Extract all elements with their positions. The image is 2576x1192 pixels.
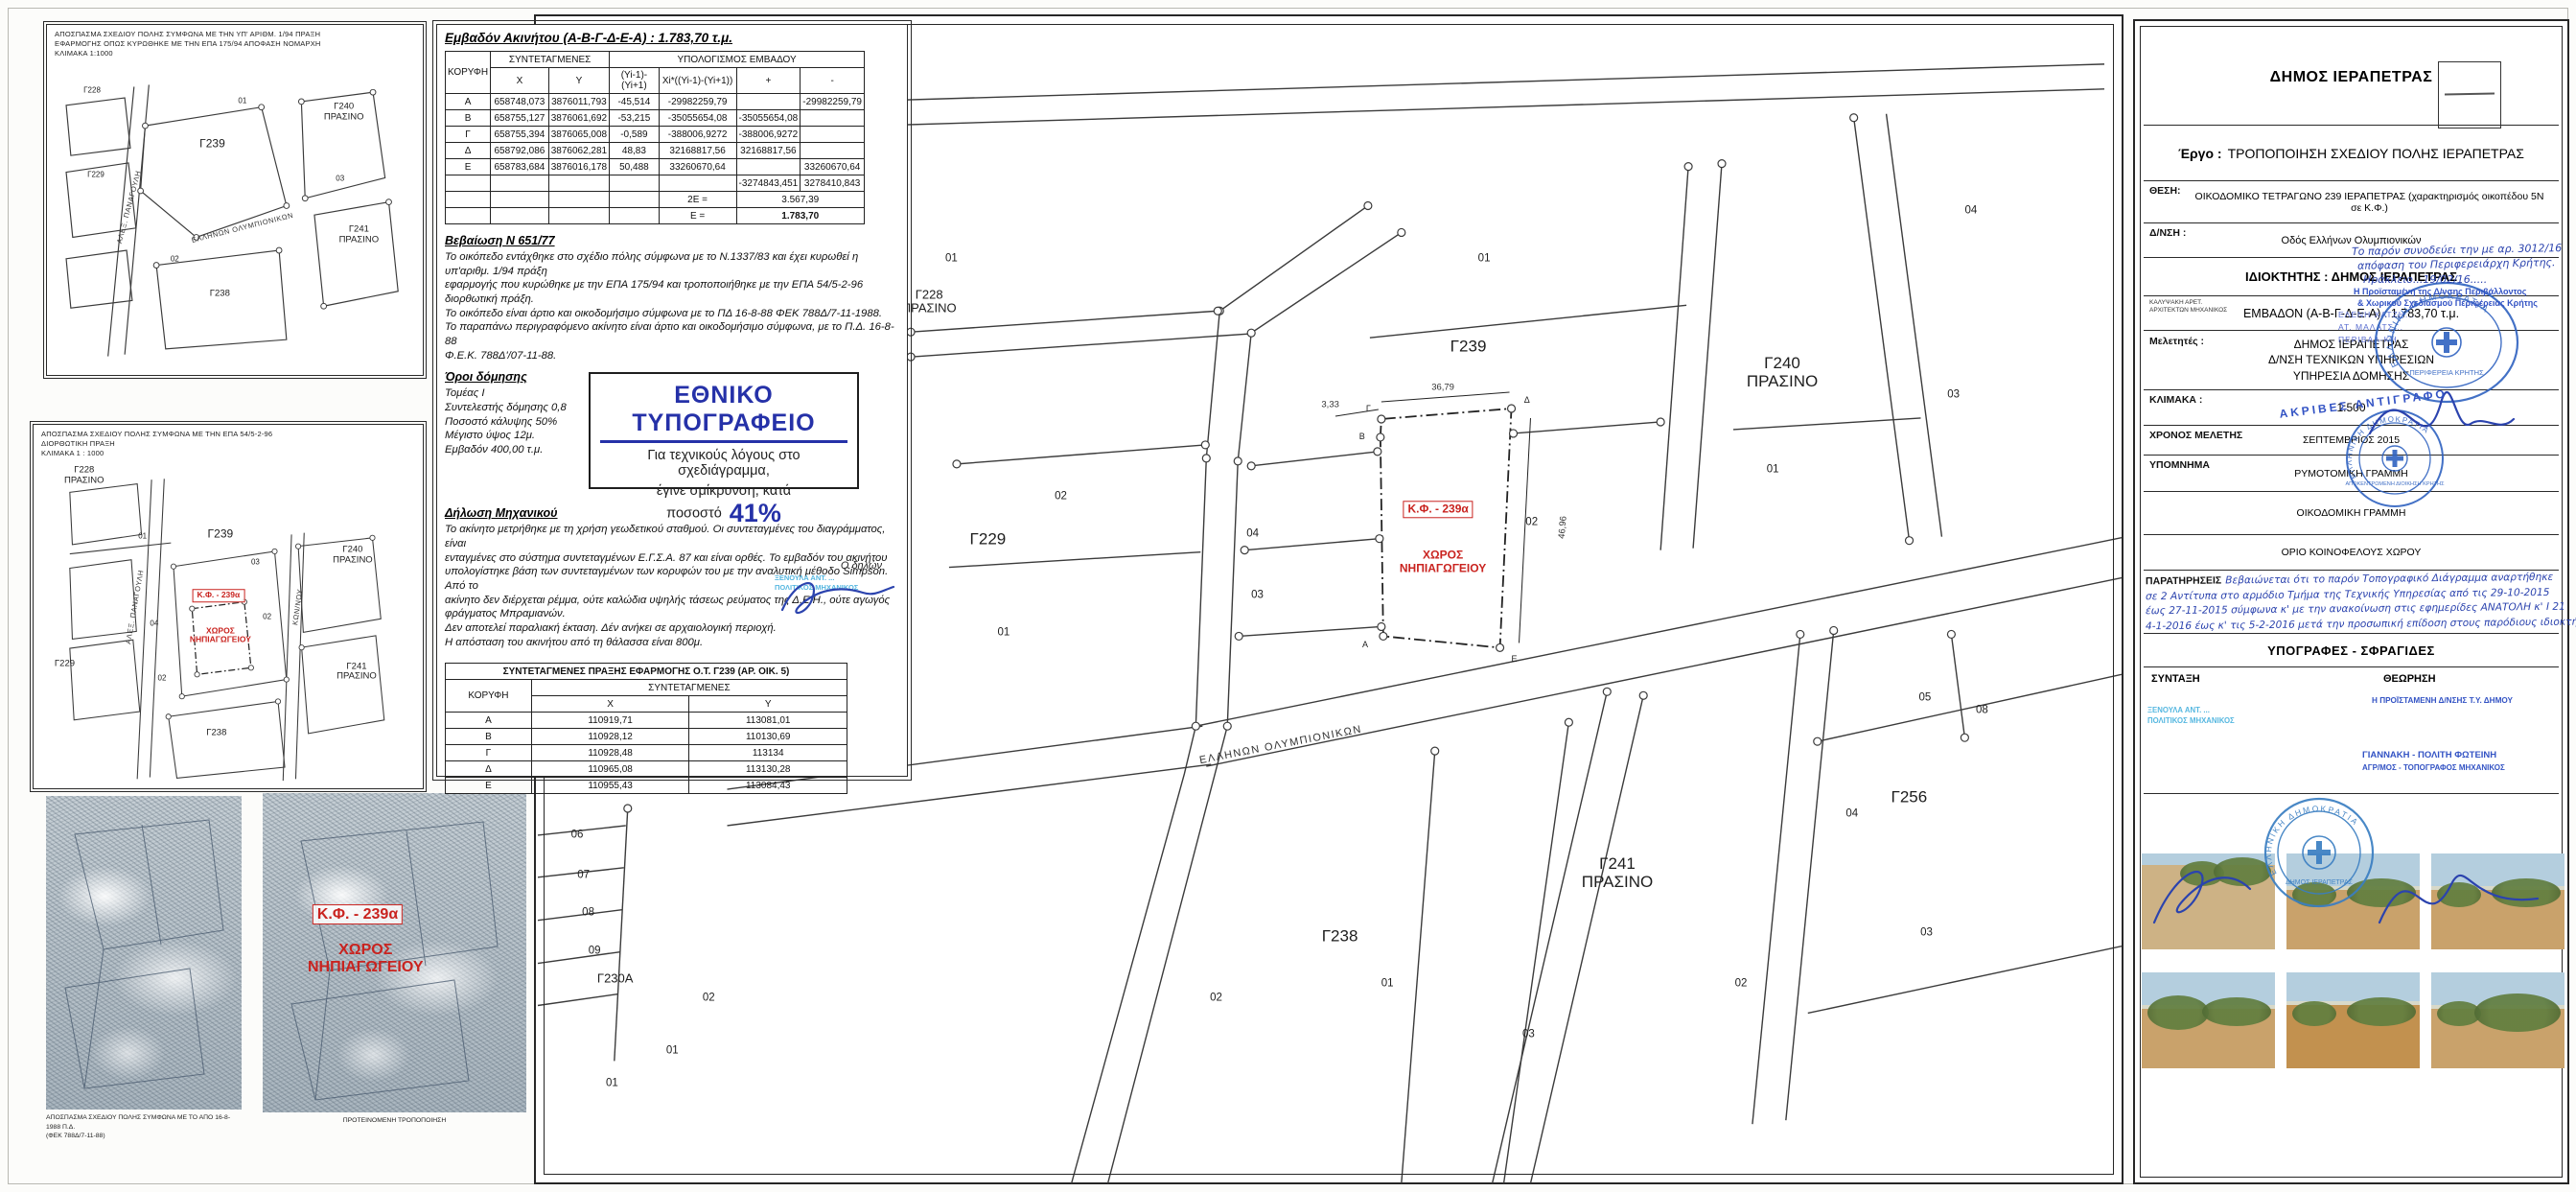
text-line: Συντελεστής δόμησης 0,8 [445,401,613,415]
certification-651-77: Βεβαίωση Ν 651/77 Το οικόπεδο εντάχθηκε … [445,234,899,362]
caption-line: ΑΠΟΣΠΑΣΜΑ ΣΧΕΔΙΟΥ ΠΟΛΗΣ ΣΥΜΦΩΝΑ ΜΕ ΤΗΝ Ε… [41,430,417,439]
drafter-title: ΑΡΧΙΤΕΚΤΩΝ ΜΗΧΑΝΙΚΟΣ [2149,307,2227,315]
building-terms-title: Όροι δόμησης [445,370,613,384]
address-label: Δ/ΝΣΗ : [2149,227,2186,239]
site-photo [2286,853,2420,949]
location-label: ΘΕΣΗ: [2149,185,2181,197]
engineer-stamp-title: ΠΟΛΙΤΙΚΟΣ ΜΗΧΑΝΙΚΟΣ [2147,716,2235,727]
scale-label: ΚΛΙΜΑΚΑ : [2149,394,2202,406]
site-photo [2431,972,2564,1068]
vegetation [2202,997,2271,1026]
col-x: X [531,696,689,713]
officer-stamp-text: ΕΛΕΝΗ ΧΑΤΖΗ... ΑΤ. ΜΑΛΑΤΣ... ΠΕΡΙΒΑΛ-ΚΗ [2338,309,2415,345]
drafter-name: ΚΑΛΥΨΑΚΗ ΑΡΕΤ. [2149,299,2227,307]
col-y: Y [548,68,609,94]
printing-office-brand: ΕΘΝΙΚΟ ΤΥΠΟΓΡΑΦΕΙΟ [600,382,847,443]
caption-line: ΑΠΟΣΠΑΣΜΑ ΣΧΕΔΙΟΥ ΠΟΛΗΣ ΣΥΜΦΩΝΑ ΜΕ ΤΟ ΑΠ… [46,1113,242,1132]
excerpt-map-1996: ΑΠΟΣΠΑΣΜΑ ΣΧΕΔΙΟΥ ΠΟΛΗΣ ΣΥΜΦΩΝΑ ΜΕ ΤΗΝ Ε… [33,424,424,789]
text-line: εφαρμογής που κυρώθηκε με την ΕΠΑ 175/94… [445,278,899,306]
text-line: Φ.Ε.Κ. 788Δ'/07-11-88. [445,349,899,363]
area-value: 1.783,70 [736,208,864,224]
col-vertex: ΚΟΡΥΦΗ [446,52,491,94]
table-row: Ε658783,6843876016,17850,48833260670,643… [446,159,865,175]
building-terms: Όροι δόμησης Τομέας Ι Συντελεστής δόμηση… [445,370,613,456]
text-line: Το οικόπεδο εντάχθηκε στο σχέδιο πόλης σ… [445,250,899,278]
site-photos [2142,853,2564,1068]
sum-value: 3.567,39 [736,192,864,208]
vegetation [2347,997,2416,1026]
table-row: Ε110955,43113084,43 [446,778,847,794]
site-photo [2142,853,2275,949]
scribble-line [2445,93,2495,96]
table-row: Γ658755,3943876065,008-0,589-388006,9272… [446,127,865,143]
municipality-name: ΔΗΜΟΣ ΙΕΡΑΠΕΤΡΑΣ [2270,69,2433,86]
site-photo [2142,972,2275,1068]
table-row: Γ110928,48113134 [446,745,847,761]
scan-image: Κ.Φ. - 239α ΧΩΡΟΣ ΝΗΠΙΑΓΩΓΕΙΟΥ [263,793,526,1112]
location-row: ΘΕΣΗ: ΟΙΚΟΔΟΜΙΚΟ ΤΕΤΡΑΓΩΝΟ 239 ΙΕΡΑΠΕΤΡΑ… [2144,181,2559,223]
parcel-lines-svg [34,467,425,788]
data-panel: Εμβαδόν Ακινήτου (Α-Β-Γ-Δ-Ε-Α) : 1.783,7… [436,24,908,777]
legend-label: ΥΠΟΜΝΗΜΑ [2149,459,2210,471]
legend-item: ΡΥΜΟΤΟΜΙΚΗ ΓΡΑΜΜΗ [2294,468,2408,479]
legend-item: ΟΡΙΟ ΚΟΙΝΟΦΕΛΟΥΣ ΧΩΡΟΥ [2282,547,2422,558]
caption-line: ΚΛΙΜΑΚΑ 1 : 1000 [41,449,417,458]
col-coordinates: ΣΥΝΤΕΤΑΓΜΕΝΕΣ [531,680,847,696]
certification-title: Βεβαίωση Ν 651/77 [445,234,899,247]
table-row: Β110928,12110130,69 [446,729,847,745]
excerpt-map-1994-caption: ΑΠΟΣΠΑΣΜΑ ΣΧΕΔΙΟΥ ΠΟΛΗΣ ΣΥΜΦΩΝΑ ΜΕ ΤΗΝ Υ… [47,25,423,60]
designer-line: Δ/ΝΣΗ ΤΕΧΝΙΚΩΝ ΥΠΗΡΕΣΙΩΝ [2268,352,2434,367]
text-line: Για τεχνικούς λόγους στο σχεδιάγραμμα, [600,448,847,479]
stamp-line: ΑΤ. ΜΑΛΑΤΣ... [2338,321,2415,334]
site-photo [2431,853,2564,949]
approver-role: Η ΠΡΟΪΣΤΑΜΕΝΗ Δ/ΝΣΗΣ Τ.Υ. ΔΗΜΟΥ [2372,696,2544,705]
plan-sheet: ΑΠΟΣΠΑΣΜΑ ΣΧΕΔΙΟΥ ΠΟΛΗΣ ΣΥΜΦΩΝΑ ΜΕ ΤΗΝ Υ… [0,0,2576,1192]
legend-item: ΟΙΚΟΔΟΜΙΚΗ ΓΡΑΜΜΗ [2297,507,2406,519]
col-x: X [491,68,549,94]
approval-label: ΘΕΩΡΗΣΗ [2383,673,2436,685]
parcel-lines-svg [47,68,425,375]
scan-image [46,796,242,1110]
project-row: Έργο : ΤΡΟΠΟΠΟΙΗΣΗ ΣΧΕΔΙΟΥ ΠΟΛΗΣ ΙΕΡΑΠΕΤ… [2144,126,2559,181]
table-row: Δ658792,0863876062,28148,8332168817,5632… [446,143,865,159]
vegetation [2214,857,2271,886]
table-row: Β658755,1273876061,692-53,215-35055654,0… [446,110,865,127]
vegetation [2492,878,2561,907]
study-date-row: ΧΡΟΝΟΣ ΜΕΛΕΤΗΣ ΣΕΠΤΕΜΒΡΙΟΣ 2015 [2144,426,2559,456]
area-calculation-table: ΚΟΡΥΦΗ ΣΥΝΤΕΤΑΓΜΕΝΕΣ ΥΠΟΛΟΓΙΣΜΟΣ ΕΜΒΑΔΟΥ… [445,51,865,224]
caption-line: ΔΙΟΡΘΩΤΙΚΗ ΠΡΑΞΗ [41,439,417,449]
project-value: ΤΡΟΠΟΠΟΙΗΣΗ ΣΧΕΔΙΟΥ ΠΟΛΗΣ ΙΕΡΑΠΕΤΡΑΣ [2228,146,2524,161]
vegetation [2292,882,2336,907]
text-line: Το οικόπεδο είναι άρτιο και οικοδομήσιμο… [445,307,899,321]
declarant-signature-block: Ο δηλών ΞΕΝΟΥΛΑ ΑΝΤ. ... ΠΟΛΙΤΙΚΟΣ ΜΗΧΑΝ… [775,560,901,639]
scan-caption: ΠΡΟΤΕΙΝΟΜΕΝΗ ΤΡΟΠΟΠΟΙΗΣΗ [263,1116,526,1126]
caption-line: ΕΦΑΡΜΟΓΗΣ ΟΠΩΣ ΚΥΡΩΘΗΚΕ ΜΕ ΤΗΝ ΕΠΑ 175/9… [55,39,417,49]
table-row: Δ110965,08113130,28 [446,761,847,778]
drafting-label: ΣΥΝΤΑΞΗ [2151,673,2200,685]
col-xidy: Xi*((Yi-1)-(Yi+1)) [659,68,736,94]
designers-label: Μελετητές : [2149,335,2204,348]
scan-excerpt-1988: ΑΠΟΣΠΑΣΜΑ ΣΧΕΔΙΟΥ ΠΟΛΗΣ ΣΥΜΦΩΝΑ ΜΕ ΤΟ ΑΠ… [46,796,242,1141]
col-vertex: ΚΟΡΥΦΗ [446,680,532,713]
kindergarten-space-label: ΧΩΡΟΣ ΝΗΠΙΑΓΩΓΕΙΟΥ [308,942,424,976]
scan-caption: ΑΠΟΣΠΑΣΜΑ ΣΧΕΔΙΟΥ ΠΟΛΗΣ ΣΥΜΦΩΝΑ ΜΕ ΤΟ ΑΠ… [46,1113,242,1141]
region-note-line: Η Προϊσταμένη της Δ/νσης Περιβάλλοντος [2354,287,2526,296]
declarant-label: Ο δηλών [775,560,901,572]
title-block: ΔΗΜΟΣ ΙΕΡΑΠΕΤΡΑΣ Έργο : ΤΡΟΠΟΠΟΙΗΣΗ ΣΧΕΔ… [2133,19,2569,1184]
col-dy: (Yi-1)-(Yi+1) [610,68,660,94]
approver-title: ΑΓΡ/ΜΟΣ - ΤΟΠΟΓΡΑΦΟΣ ΜΗΧΑΝΙΚΟΣ [2362,763,2554,772]
col-area-calc: ΥΠΟΛΟΓΙΣΜΟΣ ΕΜΒΑΔΟΥ [610,52,865,68]
caption-line: ΚΛΙΜΑΚΑ 1:1000 [55,49,417,58]
table-row: Ε = 1.783,70 [446,208,865,224]
observations-row: ΠΑΡΑΤΗΡΗΣΕΙΣΒεβαιώνεται ότι το παρόν Τοπ… [2144,571,2559,634]
stamp-line: ΠΕΡΙΒΑΛ-ΚΗ [2338,334,2415,346]
signatures-area: ΣΥΝΤΑΞΗ ΘΕΩΡΗΣΗ ΞΕΝΟΥΛΑ ΑΝΤ. ... ΠΟΛΙΤΙΚ… [2144,667,2559,794]
sum-label: 2Ε = [659,192,736,208]
vegetation [2474,993,2561,1032]
col-y: Y [689,696,847,713]
legend-row: ΟΙΚΟΔΟΜΙΚΗ ΓΡΑΜΜΗ [2144,492,2559,535]
stamp-line: ΕΛΕΝΗ ΧΑΤΖΗ... [2338,309,2415,321]
text-line: Ποσοστό κάλυψης 50% [445,415,613,430]
col-minus: - [801,68,865,94]
site-photo [2286,972,2420,1068]
kf-239a-label: Κ.Φ. - 239α [313,904,403,925]
excerpt-map-1996-caption: ΑΠΟΣΠΑΣΜΑ ΣΧΕΔΙΟΥ ΠΟΛΗΣ ΣΥΜΦΩΝΑ ΜΕ ΤΗΝ Ε… [34,425,423,460]
scan-proposed-modification: Κ.Φ. - 239α ΧΩΡΟΣ ΝΗΠΙΑΓΩΓΕΙΟΥ ΠΡΟΤΕΙΝΟΜ… [263,793,526,1143]
application-act-coords-table: ΣΥΝΤΕΤΑΓΜΕΝΕΣ ΠΡΑΞΗΣ ΕΦΑΡΜΟΓΗΣ Ο.Τ. Γ239… [445,663,847,794]
vegetation [2147,995,2209,1030]
reference-box [2438,61,2501,129]
owner-label: ΙΔΙΟΚΤΗΤΗΣ : [2245,269,2328,284]
col-plus: + [736,68,801,94]
reduction-percent: 41% [730,499,781,527]
table-row: Α658748,0733876011,793-45,514-29982259,7… [446,94,865,110]
observations-label: ΠΑΡΑΤΗΡΗΣΕΙΣ [2146,574,2221,587]
engineer-stamp-name: ΞΕΝΟΥΛΑ ΑΝΤ. ... [2147,706,2235,716]
caption-line: (ΦΕΚ 788Δ/7-11-88) [46,1132,242,1141]
signatures-header-row: ΥΠΟΓΡΑΦΕΣ - ΣΦΡΑΓΙΔΕΣ [2144,634,2559,667]
coords-table-title: ΣΥΝΤΕΤΑΓΜΕΝΕΣ ΠΡΑΞΗΣ ΕΦΑΡΜΟΓΗΣ Ο.Τ. Γ239… [446,664,847,680]
national-printing-office-note: ΕΘΝΙΚΟ ΤΥΠΟΓΡΑΦΕΙΟ Για τεχνικούς λόγους … [589,372,859,489]
municipality-header: ΔΗΜΟΣ ΙΕΡΑΠΕΤΡΑΣ [2144,30,2559,126]
caption-line: ΑΠΟΣΠΑΣΜΑ ΣΧΕΔΙΟΥ ΠΟΛΗΣ ΣΥΜΦΩΝΑ ΜΕ ΤΗΝ Υ… [55,30,417,39]
location-value: ΟΙΚΟΔΟΜΙΚΟ ΤΕΤΡΑΓΩΝΟ 239 ΙΕΡΑΠΕΤΡΑΣ (χαρ… [2193,191,2545,214]
drafter-note: ΚΑΛΥΨΑΚΗ ΑΡΕΤ. ΑΡΧΙΤΕΚΤΩΝ ΜΗΧΑΝΙΚΟΣ [2149,299,2227,316]
approver-name: ΓΙΑΝΝΑΚΗ - ΠΟΛΙΤΗ ΦΩΤΕΙΝΗ [2362,750,2554,760]
area-label: Ε = [659,208,736,224]
study-date-value: ΣΕΠΤΕΜΒΡΙΟΣ 2015 [2303,434,2400,446]
legend-row: ΥΠΟΜΝΗΜΑ ΡΥΜΟΤΟΜΙΚΗ ΓΡΑΜΜΗ [2144,456,2559,492]
text-line: Εμβαδόν 400,00 τ.μ. [445,443,613,457]
text-line: Μέγιστο ύψος 12μ. [445,429,613,443]
text-line: Το παραπάνω περιγραφόμενο ακίνητο είναι … [445,320,899,348]
vegetation [2437,882,2481,907]
region-note-line: & Χωρικού Σχεδιασμού Περιφέρειας Κρήτης [2357,298,2538,308]
vegetation [2292,1001,2336,1026]
text-line: Τομέας Ι [445,386,613,401]
project-label: Έργο : [2178,146,2222,161]
legend-row: ΟΡΙΟ ΚΟΙΝΟΦΕΛΟΥΣ ΧΩΡΟΥ [2144,535,2559,571]
table-row: 2Ε = 3.567,39 [446,192,865,208]
col-coordinates: ΣΥΝΤΕΤΑΓΜΕΝΕΣ [491,52,610,68]
table-row: -3274843,4513278410,843 [446,175,865,192]
declarant-signature [775,573,899,618]
scan-linework [46,796,242,1110]
excerpt-map-1994: ΑΠΟΣΠΑΣΜΑ ΣΧΕΔΙΟΥ ΠΟΛΗΣ ΣΥΜΦΩΝΑ ΜΕ ΤΗΝ Υ… [46,24,424,376]
designer-line: ΥΠΗΡΕΣΙΑ ΔΟΜΗΣΗΣ [2293,368,2409,384]
handwritten-line: Βεβαιώνεται ότι το παρόν Τοπογραφικό Διά… [2225,572,2553,587]
study-date-label: ΧΡΟΝΟΣ ΜΕΛΕΤΗΣ [2149,430,2242,441]
vegetation [2347,878,2416,907]
signatures-header: ΥΠΟΓΡΑΦΕΣ - ΣΦΡΑΓΙΔΕΣ [2267,643,2435,658]
region-note-line: Ηράκλειο...19/02/16..... [2363,273,2487,286]
area-title: Εμβαδόν Ακινήτου (Α-Β-Γ-Δ-Ε-Α) : 1.783,7… [445,31,899,45]
table-row: Α110919,71113081,01 [446,713,847,729]
